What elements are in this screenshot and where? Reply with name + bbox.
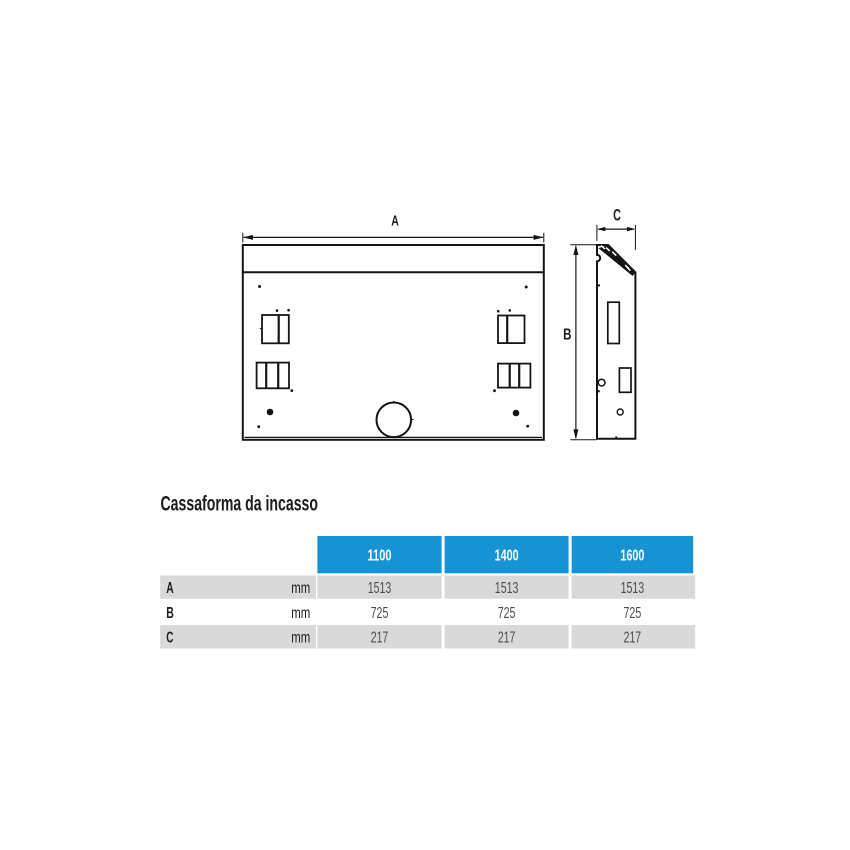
svg-text:1100: 1100 <box>368 547 392 564</box>
svg-text:A: A <box>391 212 399 229</box>
svg-text:B: B <box>563 326 571 343</box>
svg-text:A: A <box>166 580 174 597</box>
svg-text:217: 217 <box>624 629 642 646</box>
svg-text:mm: mm <box>291 629 310 646</box>
svg-text:1513: 1513 <box>621 580 645 597</box>
svg-text:1400: 1400 <box>495 547 519 564</box>
svg-text:725: 725 <box>371 605 389 622</box>
svg-text:mm: mm <box>291 605 310 622</box>
svg-text:1600: 1600 <box>620 547 644 564</box>
svg-text:217: 217 <box>498 629 516 646</box>
svg-text:mm: mm <box>291 580 310 597</box>
svg-text:C: C <box>613 206 621 225</box>
svg-text:725: 725 <box>624 605 642 622</box>
svg-text:1513: 1513 <box>495 580 519 597</box>
svg-text:Cassaforma da incasso: Cassaforma da incasso <box>161 493 319 516</box>
svg-text:725: 725 <box>498 605 516 622</box>
svg-text:C: C <box>166 629 173 646</box>
svg-text:217: 217 <box>371 629 389 646</box>
svg-text:B: B <box>166 605 174 622</box>
svg-text:1513: 1513 <box>368 580 392 597</box>
